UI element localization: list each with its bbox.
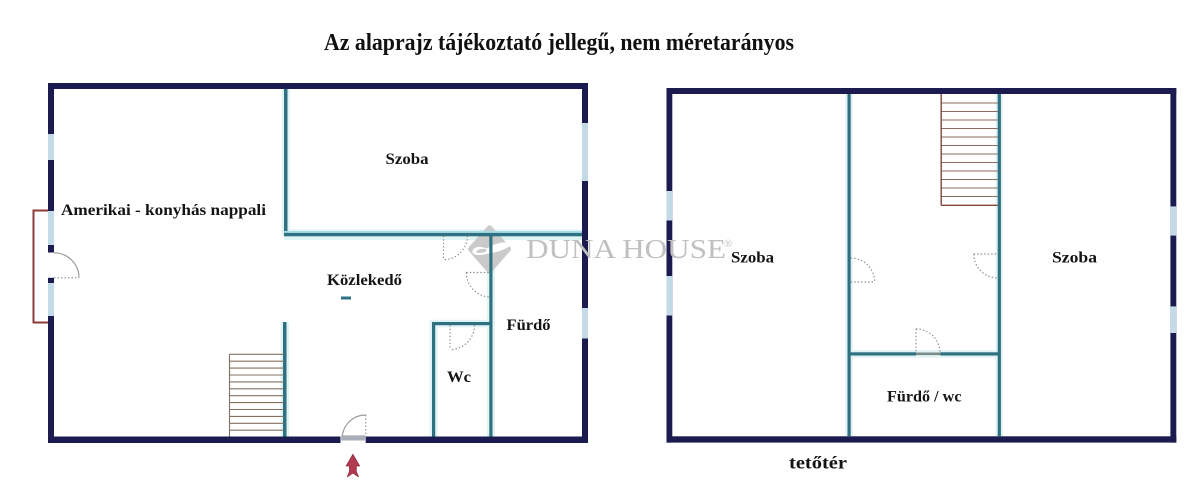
svg-text:®: ® (724, 238, 732, 250)
svg-text:Az alaprajz tájékoztató jelleg: Az alaprajz tájékoztató jellegű, nem mér… (324, 30, 794, 56)
svg-text:Wc: Wc (447, 369, 471, 386)
svg-text:tetőtér: tetőtér (789, 453, 847, 473)
svg-text:DUNA HOUSE: DUNA HOUSE (526, 234, 726, 264)
svg-text:Közlekedő: Közlekedő (327, 272, 402, 289)
svg-text:Amerikai - konyhás nappali: Amerikai - konyhás nappali (61, 202, 267, 219)
svg-text:Szoba: Szoba (731, 250, 774, 267)
svg-text:Fürdő: Fürdő (507, 317, 551, 334)
svg-text:Fürdő / wc: Fürdő / wc (887, 389, 962, 406)
svg-text:Szoba: Szoba (386, 151, 429, 168)
svg-text:Szoba: Szoba (1052, 250, 1097, 267)
